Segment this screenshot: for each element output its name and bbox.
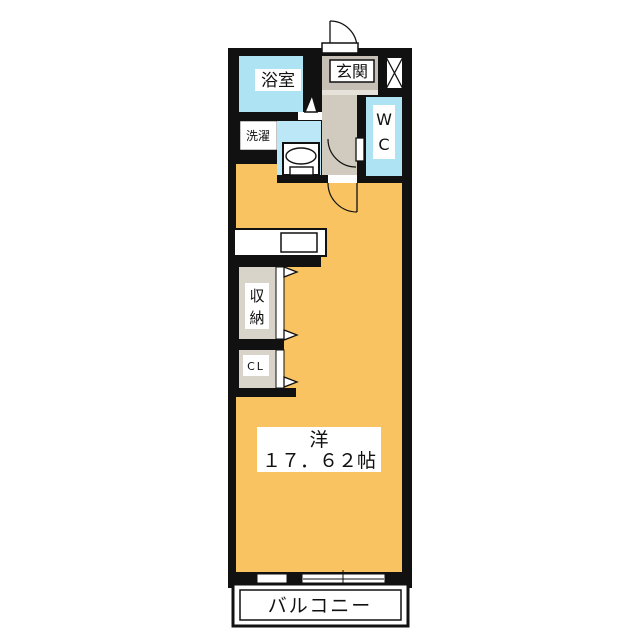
entrance-label: 玄関 <box>336 62 368 81</box>
hallway-floor <box>322 95 357 175</box>
storage-label-char2: 納 <box>249 309 264 327</box>
laundry-label: 洗濯 <box>246 129 270 143</box>
room-door-opening <box>328 175 357 183</box>
wc-label-line1: W <box>376 110 392 129</box>
closet-label: CL <box>247 360 265 373</box>
washbasin <box>283 143 319 175</box>
pipe-space-icon <box>386 57 403 89</box>
balcony: バルコニー <box>233 584 408 626</box>
floor-plan: 浴室 玄関 W C 洗濯 <box>0 0 640 640</box>
entrance-step <box>322 90 378 95</box>
bath-door-threshold <box>298 112 322 120</box>
entrance-door-leaf <box>322 43 358 53</box>
main-room-floor-notch <box>236 164 277 183</box>
main-room-name: 洋 <box>309 429 328 451</box>
wc-door-leaf <box>356 138 364 161</box>
storage-door-track <box>276 267 284 339</box>
closet-door-track <box>276 350 284 388</box>
floor-plan-canvas: 浴室 玄関 W C 洗濯 <box>0 0 640 640</box>
kitchen-sink <box>281 233 317 252</box>
storage-label-char1: 収 <box>249 287 264 305</box>
kitchen-wall <box>228 255 321 267</box>
kitchen-counter <box>234 229 326 256</box>
balcony-label: バルコニー <box>268 595 373 617</box>
bath-label: 浴室 <box>261 71 295 91</box>
main-room-area: １７．６２帖 <box>262 450 376 472</box>
wc-label-line2: C <box>378 135 389 154</box>
storage-wall-end <box>284 388 296 397</box>
